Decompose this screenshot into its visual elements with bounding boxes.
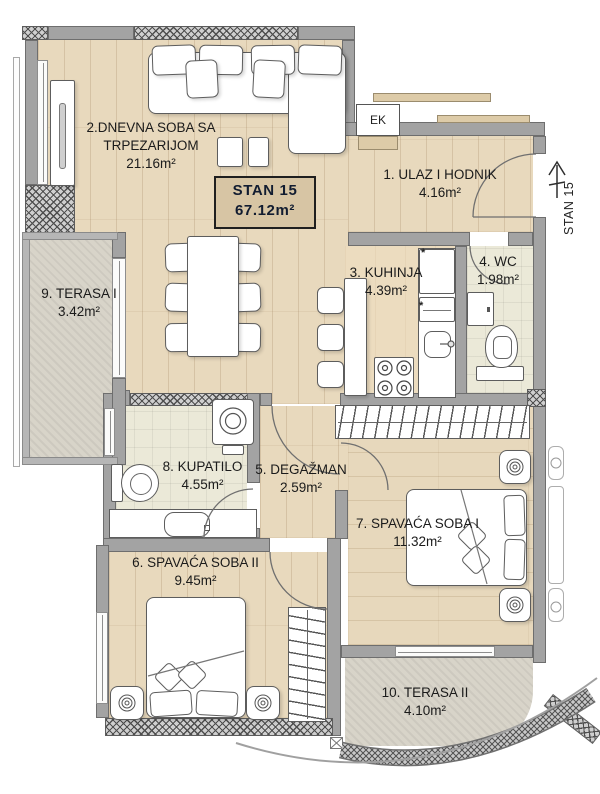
room-area: 11.32m² [330,533,505,551]
cabinet-handle [487,307,490,312]
room-label-soba1: 7. SPAVAĆA SOBA I 11.32m² [330,515,505,551]
unit-title-box: STAN 15 67.12m² [214,176,316,229]
washing-machine [212,399,254,445]
terrace-wall [22,457,118,465]
neighbor-furniture [548,446,564,480]
room-label-terasa1: 9. TERASA I 3.42m² [35,285,123,321]
pillow [503,495,525,537]
stove [374,357,414,398]
window-sill [437,115,530,123]
room-name: 1. ULAZ I HODNIK [365,166,515,184]
wardrobe-bedroom2 [288,607,326,722]
unit-label: STAN 15 [216,181,314,201]
room-name: 2.DNEVNA SOBA SA [67,119,235,137]
dining-table [187,236,239,357]
unit-area: 67.12m² [216,201,314,221]
room-name: TRPEZARIJOM [67,137,235,155]
window-sill [373,93,491,102]
wall [348,232,470,246]
entry-marker-label: STAN 15 [562,160,576,235]
room-label-dnevna: 2.DNEVNA SOBA SA TRPEZARIJOM 21.16m² [67,119,235,172]
room-label-kuhinja: 3. KUHINJA 4.39m² [330,264,442,300]
wall [327,538,341,736]
bar-stool [317,324,344,351]
drain-box [330,737,343,749]
terrace2-glass-door [395,646,495,657]
wall [533,136,546,154]
wall [508,232,533,246]
pillow [149,690,193,718]
room-area: 21.16m² [67,155,235,173]
side-table [252,59,286,99]
floor-terrace1 [30,240,112,457]
ottoman [248,137,269,167]
room-name: 4. WC [443,253,553,271]
balcony-edge [13,57,20,467]
room-label-soba2: 6. SPAVAĆA SOBA II 9.45m² [103,554,288,590]
room-name: 9. TERASA I [35,285,123,303]
side-table [185,59,219,99]
oven-line [423,310,451,311]
room-area: 4.39m² [330,282,442,300]
pillow [503,539,525,581]
sink-tap [204,525,210,531]
bedroom2-window [96,612,108,704]
room-label-ulaz: 1. ULAZ I HODNIK 4.16m² [365,166,515,202]
terrace-wall [22,232,118,240]
room-area: 4.55m² [130,476,275,494]
toilet-bowl-inner [493,336,512,359]
nightstand [499,588,531,622]
wall-hatched [22,26,48,40]
room-area: 3.42m² [35,303,123,321]
room-area: 4.16m² [365,184,515,202]
vent-star-icon: * [419,300,423,312]
room-name: 10. TERASA II [355,684,495,702]
room-area: 4.10m² [355,702,495,720]
washer-tray [222,445,244,455]
shaft-box-ek: EK [356,104,400,136]
vent-star-icon: * [421,247,425,259]
bathroom-window [104,408,115,456]
terrace-wall [22,232,30,465]
room-name: 8. KUPATILO [130,458,275,476]
shaft-label: EK [370,113,386,127]
pillow [195,690,238,717]
window [37,60,48,185]
bar-stool [317,361,344,388]
room-area: 1.98m² [443,271,553,289]
room-name: 3. KUHINJA [330,264,442,282]
wall [48,26,134,40]
sofa-cushion [297,44,342,76]
room-area: 9.45m² [103,572,288,590]
wall [260,393,272,406]
nightstand [110,686,144,720]
shaft-block [358,136,398,150]
neighbor-furniture [548,486,564,584]
wc-toilet [485,325,518,368]
wall [103,538,270,552]
wc-cistern [476,366,524,381]
wall [298,26,355,40]
wall-hatched [134,26,298,40]
wc-cabinet [467,292,494,326]
tv-screen [59,103,66,169]
wall-hatched [25,185,75,233]
neighbor-furniture [548,588,564,622]
nightstand [246,686,280,720]
oven [419,297,455,322]
kitchen-sink [424,331,451,358]
floor-plan: EK * * [0,0,600,794]
room-label-kupatilo: 8. KUPATILO 4.55m² [130,458,275,494]
room-label-wc: 4. WC 1.98m² [443,253,553,289]
room-name: 6. SPAVAĆA SOBA II [103,554,288,572]
room-label-terasa2: 10. TERASA II 4.10m² [355,684,495,720]
wall-hatched [544,694,600,744]
nightstand [499,450,531,484]
room-name: 7. SPAVAĆA SOBA I [330,515,505,533]
wardrobe-hall [335,405,530,439]
